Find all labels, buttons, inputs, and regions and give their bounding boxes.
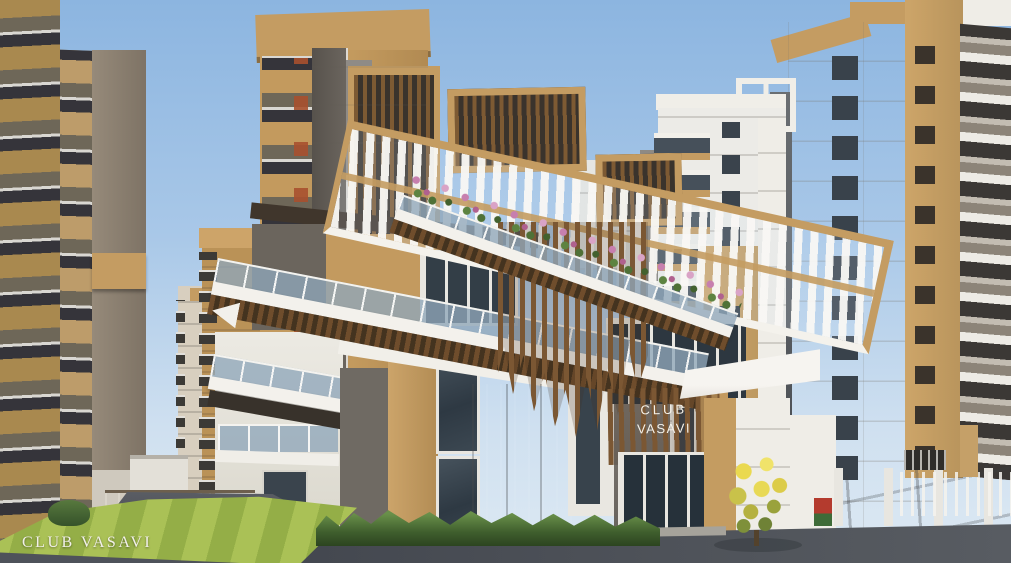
lawn-bush bbox=[48, 500, 90, 526]
kiosk-object bbox=[814, 498, 832, 526]
left-tower-front bbox=[0, 0, 60, 563]
architectural-rendering: CLUB VASAVI CLUB VASAVI bbox=[0, 0, 1011, 563]
tan-band-windows bbox=[915, 24, 935, 464]
left-balustrade bbox=[218, 424, 338, 452]
compound-fence-posts bbox=[900, 472, 1011, 516]
left-midrise-parapet bbox=[92, 253, 146, 289]
base-balcony-rail bbox=[904, 450, 946, 470]
base-tan-strip bbox=[960, 425, 978, 477]
image-caption: CLUB VASAVI bbox=[22, 534, 152, 552]
yellow-flower-bush bbox=[722, 452, 794, 540]
